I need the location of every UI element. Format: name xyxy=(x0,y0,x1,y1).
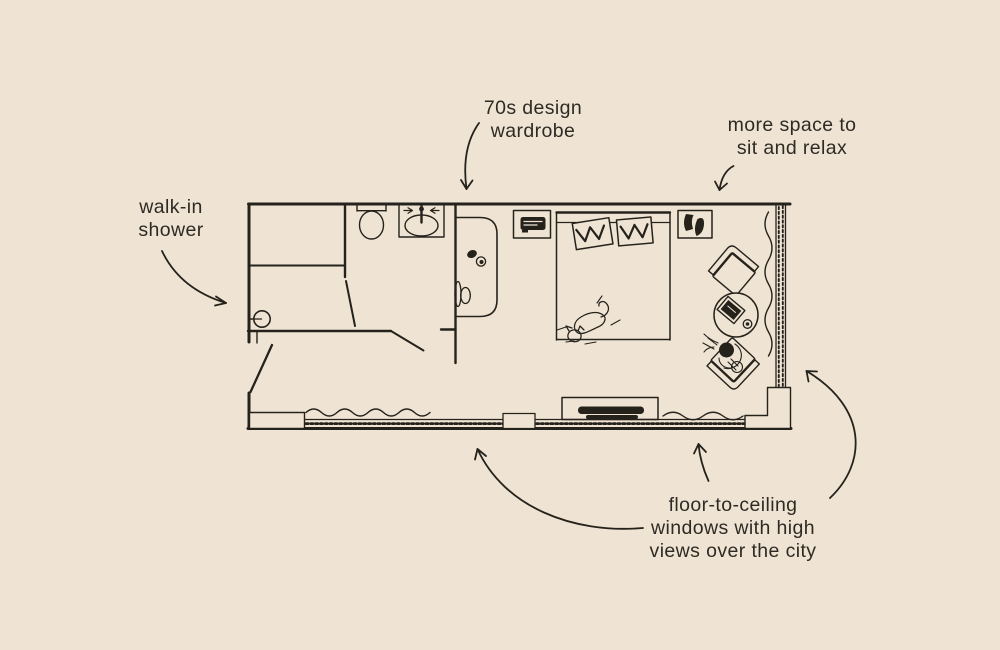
wardrobe-label: 70s design wardrobe xyxy=(484,97,582,143)
tv-icon xyxy=(578,407,644,420)
pillow xyxy=(572,218,613,250)
curtain-wave-bottom-right xyxy=(663,412,743,420)
interior-walls xyxy=(248,204,456,363)
cup-icon xyxy=(743,320,752,329)
round-table xyxy=(714,293,758,337)
walk-in-shower-label: walk-in shower xyxy=(138,196,203,242)
windows-label: floor-to-ceiling windows with high views… xyxy=(650,494,817,563)
pillow xyxy=(616,217,653,246)
curtain-wave-bottom-left xyxy=(306,409,430,416)
armchair-top xyxy=(708,244,760,296)
curtains xyxy=(306,212,772,420)
sink-icon xyxy=(399,204,444,237)
bag-icon xyxy=(684,214,704,236)
wardrobe-70s xyxy=(455,218,497,317)
toilet-icon xyxy=(357,205,386,240)
bathroom-door xyxy=(391,331,424,351)
nightstand-right xyxy=(678,211,712,239)
windows-arrow-right-wall xyxy=(807,371,856,498)
tv-console xyxy=(562,398,658,420)
cat-sleeping xyxy=(557,296,620,344)
wall-pier-right xyxy=(745,388,791,429)
entry-door xyxy=(251,345,273,392)
wall-pier-left xyxy=(250,413,305,429)
wardrobe-handle xyxy=(455,282,470,307)
walk-in-shower-arrow xyxy=(162,251,226,306)
doors xyxy=(251,281,424,392)
windows-arrow-up xyxy=(694,444,709,481)
sitting-area-label: more space to sit and relax xyxy=(728,114,857,160)
nightstand-left xyxy=(514,211,551,239)
windows-arrow-swoop xyxy=(475,449,643,529)
shower-door xyxy=(346,281,355,326)
wardrobe-shoes xyxy=(466,248,486,266)
floorplan-page: walk-in shower 70s design wardrobe more … xyxy=(0,0,1000,650)
radio-icon xyxy=(521,217,546,233)
wardrobe-arrow xyxy=(461,123,479,189)
armchair-bottom xyxy=(706,337,760,391)
window-mullion xyxy=(503,414,535,429)
window-band-right xyxy=(776,204,786,387)
shower-head-icon xyxy=(249,311,270,327)
curtain-wave-right xyxy=(765,212,772,356)
sitting-area-arrow xyxy=(715,166,734,190)
